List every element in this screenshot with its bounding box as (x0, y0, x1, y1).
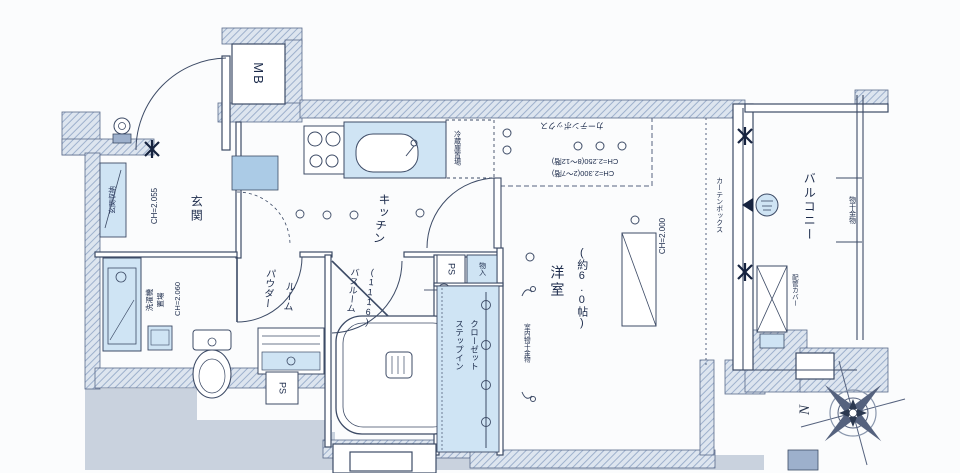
storage-small-label: 物入 (478, 262, 485, 276)
balcony-label: バルコニー (803, 172, 816, 242)
pipe-cover-box (757, 266, 787, 348)
toilet (193, 330, 231, 398)
window-ch-label: CH=2.000 (659, 218, 667, 254)
closet-label-2: クローゼット (470, 320, 479, 371)
powder-room-label-2: ルーム (280, 281, 294, 312)
ceiling-height-lower: CH=2.300(2〜7階) (552, 169, 614, 177)
pole-hardware-label: 物干金物 (848, 196, 855, 224)
washer-space (103, 258, 141, 351)
mb-label: MB (251, 62, 265, 86)
vanity (258, 328, 324, 374)
closet (437, 286, 499, 452)
laundry-label-1: 洗濯機 (146, 289, 154, 312)
western-room-size: (約6.0帖) (575, 247, 587, 329)
doorbell-symbol (113, 118, 131, 143)
downlight-symbols (296, 209, 424, 219)
drain-box (788, 450, 818, 470)
powder-ch-label: CH=2.060 (174, 282, 182, 316)
compass-north-label: N (798, 405, 814, 415)
pipe-cover-label: 配管カバー (790, 274, 797, 307)
small-storage-box (148, 326, 172, 350)
entrance-ch-label: CH=2.055 (151, 188, 159, 224)
kitchen-counter (304, 122, 446, 178)
fridge-label: 冷蔵庫置場 (453, 131, 460, 166)
ceiling-symbols (503, 129, 639, 261)
laundry-label-2: 置場 (157, 293, 165, 308)
room-fixture-rect (622, 233, 656, 326)
floor-plan: MB 玄関 CH=2.055 玄関収納 キッチン 冷蔵庫置場 カーテンボックス … (0, 0, 960, 473)
curtain-box-label: カーテンボックス (715, 177, 722, 233)
entrance-tile (232, 156, 278, 190)
ceiling-height-upper: CH=2.250(8〜12階) (552, 157, 619, 165)
ceiling-box-label: カーテンボックス (540, 121, 604, 129)
ps-label-2: PS (277, 382, 286, 394)
entrance-storage-label: 玄関収納 (109, 186, 116, 214)
closet-label-1: ステップイン (455, 320, 464, 371)
ps-label-1: PS (446, 263, 455, 275)
kitchen-room-door (427, 178, 501, 248)
western-room-label: 洋室 (550, 265, 565, 299)
entrance-label: 玄関 (190, 195, 203, 223)
indoor-hanger-label: 室内物干金物 (522, 324, 529, 363)
